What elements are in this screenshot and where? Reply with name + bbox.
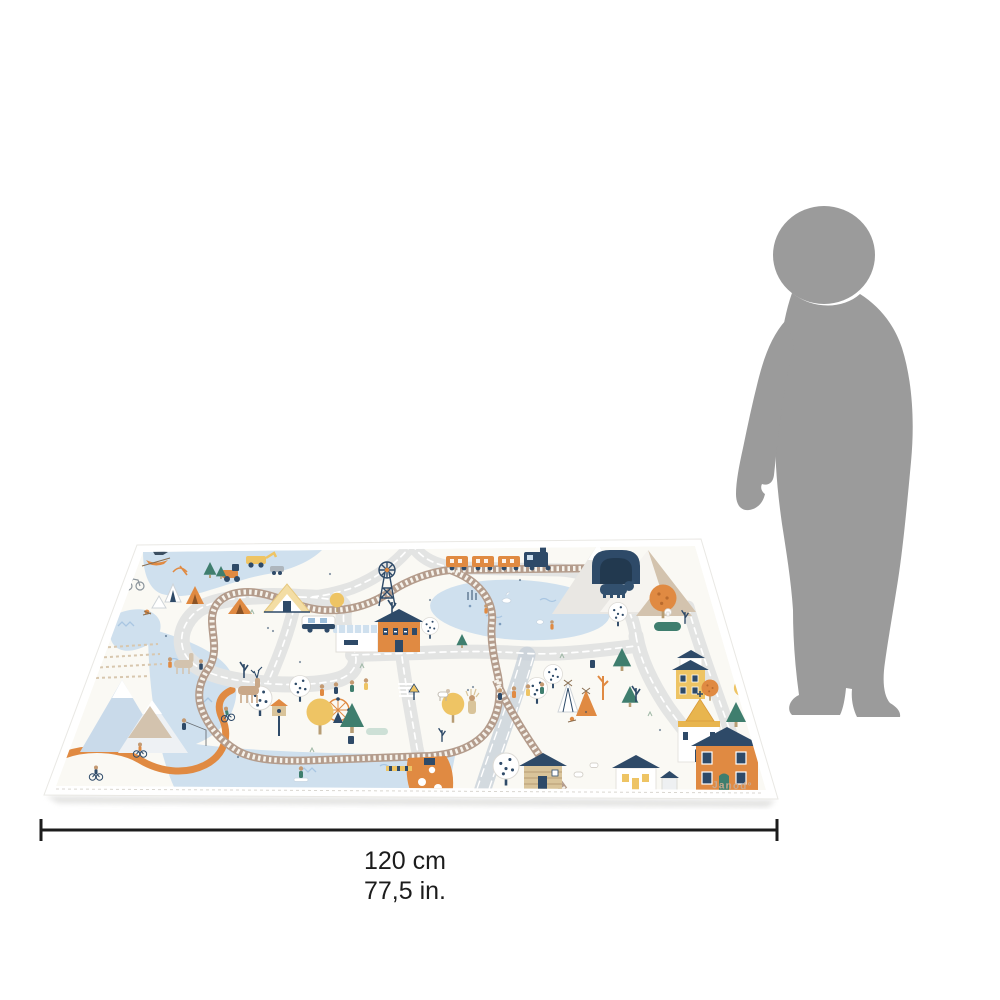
child-silhouette-body [776, 293, 913, 717]
dimension-label-in: 77,5 in. [364, 877, 446, 905]
brand-logo-text: Janod° [712, 780, 753, 792]
scene: Janod° 120 cm 77,5 in. [0, 0, 1000, 1000]
play-mat: Janod° [44, 539, 778, 807]
dimension-label-cm: 120 cm [364, 847, 446, 875]
dimension-annotation: 120 cm 77,5 in. [41, 819, 777, 905]
product-dimension-image: Janod° 120 cm 77,5 in. [0, 0, 1000, 1000]
child-silhouette [736, 206, 913, 717]
